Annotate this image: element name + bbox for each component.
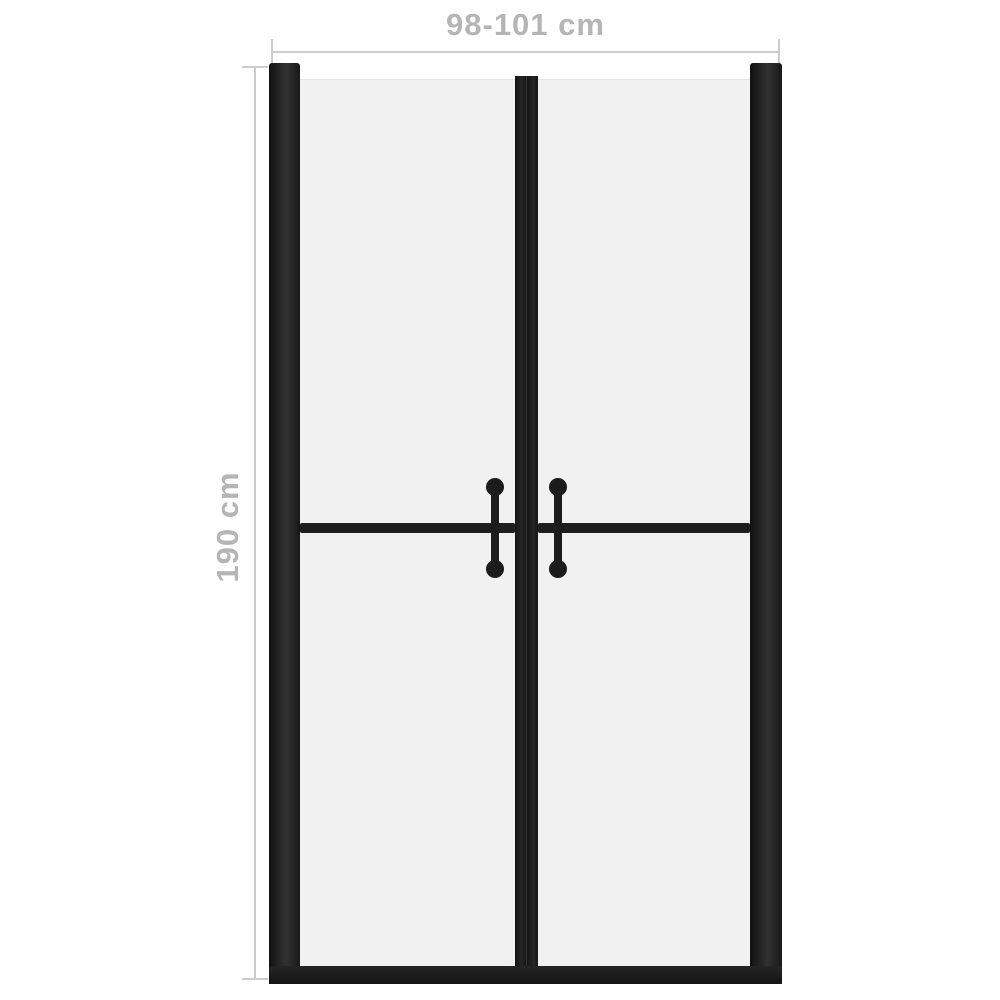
right-door-stile: [527, 76, 538, 967]
right-door-handle: [549, 478, 567, 578]
left-frame-post: [269, 63, 300, 984]
width-dimension-line: [271, 51, 780, 53]
height-dimension-line: [254, 66, 256, 980]
right-handle-bottom-knob: [549, 560, 567, 578]
width-dimension-right-cap: [778, 39, 780, 65]
right-handle-bar: [554, 486, 562, 570]
bottom-frame-bar: [269, 966, 782, 984]
left-handle-bar: [491, 486, 499, 570]
left-door-handle: [486, 478, 504, 578]
height-dimension-label: 190 cm: [210, 471, 246, 582]
product-dimension-diagram: 98-101 cm 190 cm: [0, 0, 1000, 1000]
left-door-middle-crossbar: [300, 523, 515, 533]
left-handle-bottom-knob: [486, 560, 504, 578]
width-dimension-label: 98-101 cm: [271, 7, 780, 43]
left-door-stile: [515, 76, 526, 967]
right-door-middle-crossbar: [538, 523, 750, 533]
width-dimension-left-cap: [271, 39, 273, 65]
height-dimension-top-cap: [242, 66, 268, 68]
right-frame-post: [750, 63, 782, 984]
height-dimension-bottom-cap: [242, 978, 268, 980]
center-door-stiles: [515, 76, 538, 967]
